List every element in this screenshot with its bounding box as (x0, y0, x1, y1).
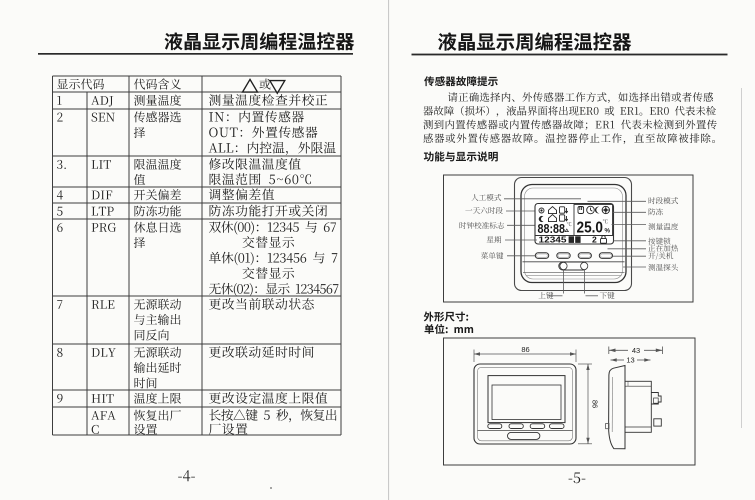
svg-text:12345: 12345 (539, 235, 567, 245)
svg-text:86: 86 (521, 345, 529, 354)
svg-text:86: 86 (591, 400, 600, 408)
svg-text:43: 43 (632, 346, 640, 355)
svg-text:13: 13 (626, 356, 634, 365)
svg-text:25.0: 25.0 (577, 220, 604, 237)
svg-text:%: % (605, 228, 611, 235)
